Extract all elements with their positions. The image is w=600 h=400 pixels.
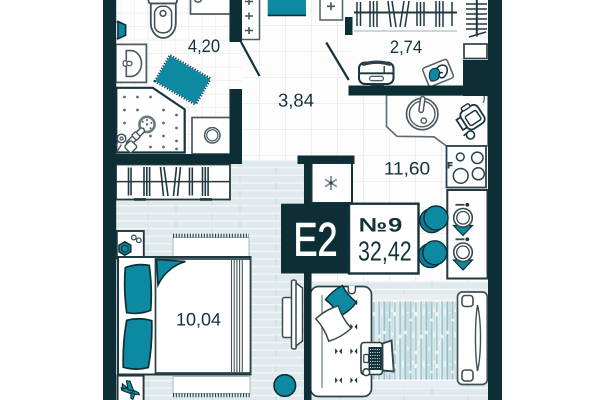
svg-text:E2: E2 [294,213,338,266]
svg-text:4,20: 4,20 [188,36,220,56]
svg-text:3,84: 3,84 [278,90,314,111]
svg-text:32,42: 32,42 [358,236,412,267]
svg-text:2,74: 2,74 [390,37,422,57]
svg-text:F: F [448,161,453,170]
svg-text:10,04: 10,04 [176,310,221,330]
svg-text:11,60: 11,60 [384,159,430,179]
svg-text:№9: №9 [359,215,403,237]
